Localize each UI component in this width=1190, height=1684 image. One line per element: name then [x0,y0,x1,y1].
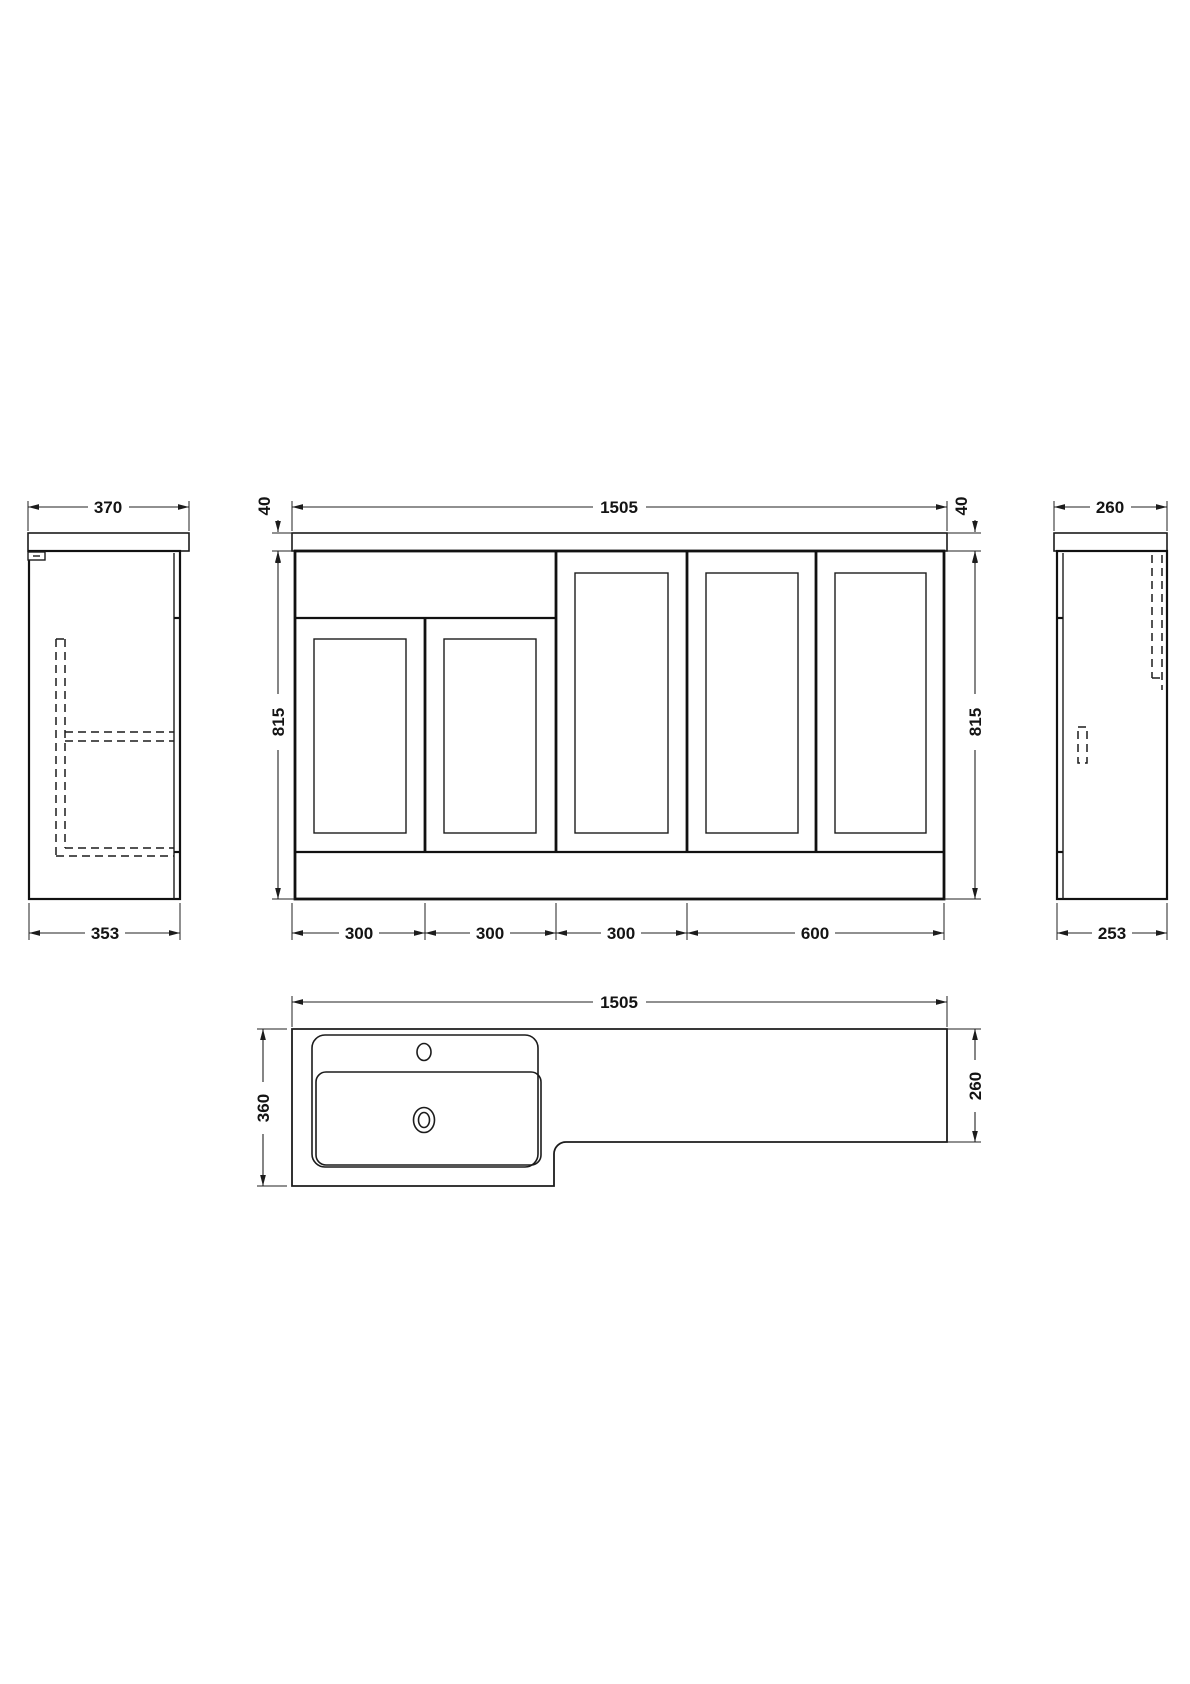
dim-left-depth: 353 [91,924,119,943]
dim-module-1: 300 [345,924,373,943]
side-view-left: 370 353 [28,498,189,943]
dim-module-3: 300 [607,924,635,943]
left-view-cabinet-body [29,551,180,899]
dim-left-width: 370 [94,498,122,517]
right-view-worktop [1054,533,1167,551]
dim-right-depth: 253 [1098,924,1126,943]
front-cabinet-outline [295,551,944,899]
dim-front-thickness-left: 40 [255,497,274,516]
dim-plan-depth-left: 360 [254,1094,273,1122]
dim-front-width: 1505 [600,498,638,517]
drawing-page: 370 353 [0,0,1190,1684]
dim-front-thickness-right: 40 [952,497,971,516]
technical-drawing: 370 353 [0,0,1190,1684]
right-view-cabinet-body [1057,551,1167,899]
dim-plan-width: 1505 [600,993,638,1012]
dim-module-2: 300 [476,924,504,943]
side-view-right: 260 253 [1054,498,1167,943]
dim-right-width: 260 [1096,498,1124,517]
front-view: 1505 40 815 40 81 [255,497,985,943]
dim-front-height-left: 815 [269,708,288,736]
basin-rim [312,1035,538,1167]
dim-front-height-right: 815 [966,708,985,736]
hinge-plate-icon [28,552,45,560]
front-worktop [292,533,947,551]
left-view-worktop [28,533,189,551]
dim-module-4: 600 [801,924,829,943]
dim-plan-depth-right: 260 [966,1072,985,1100]
